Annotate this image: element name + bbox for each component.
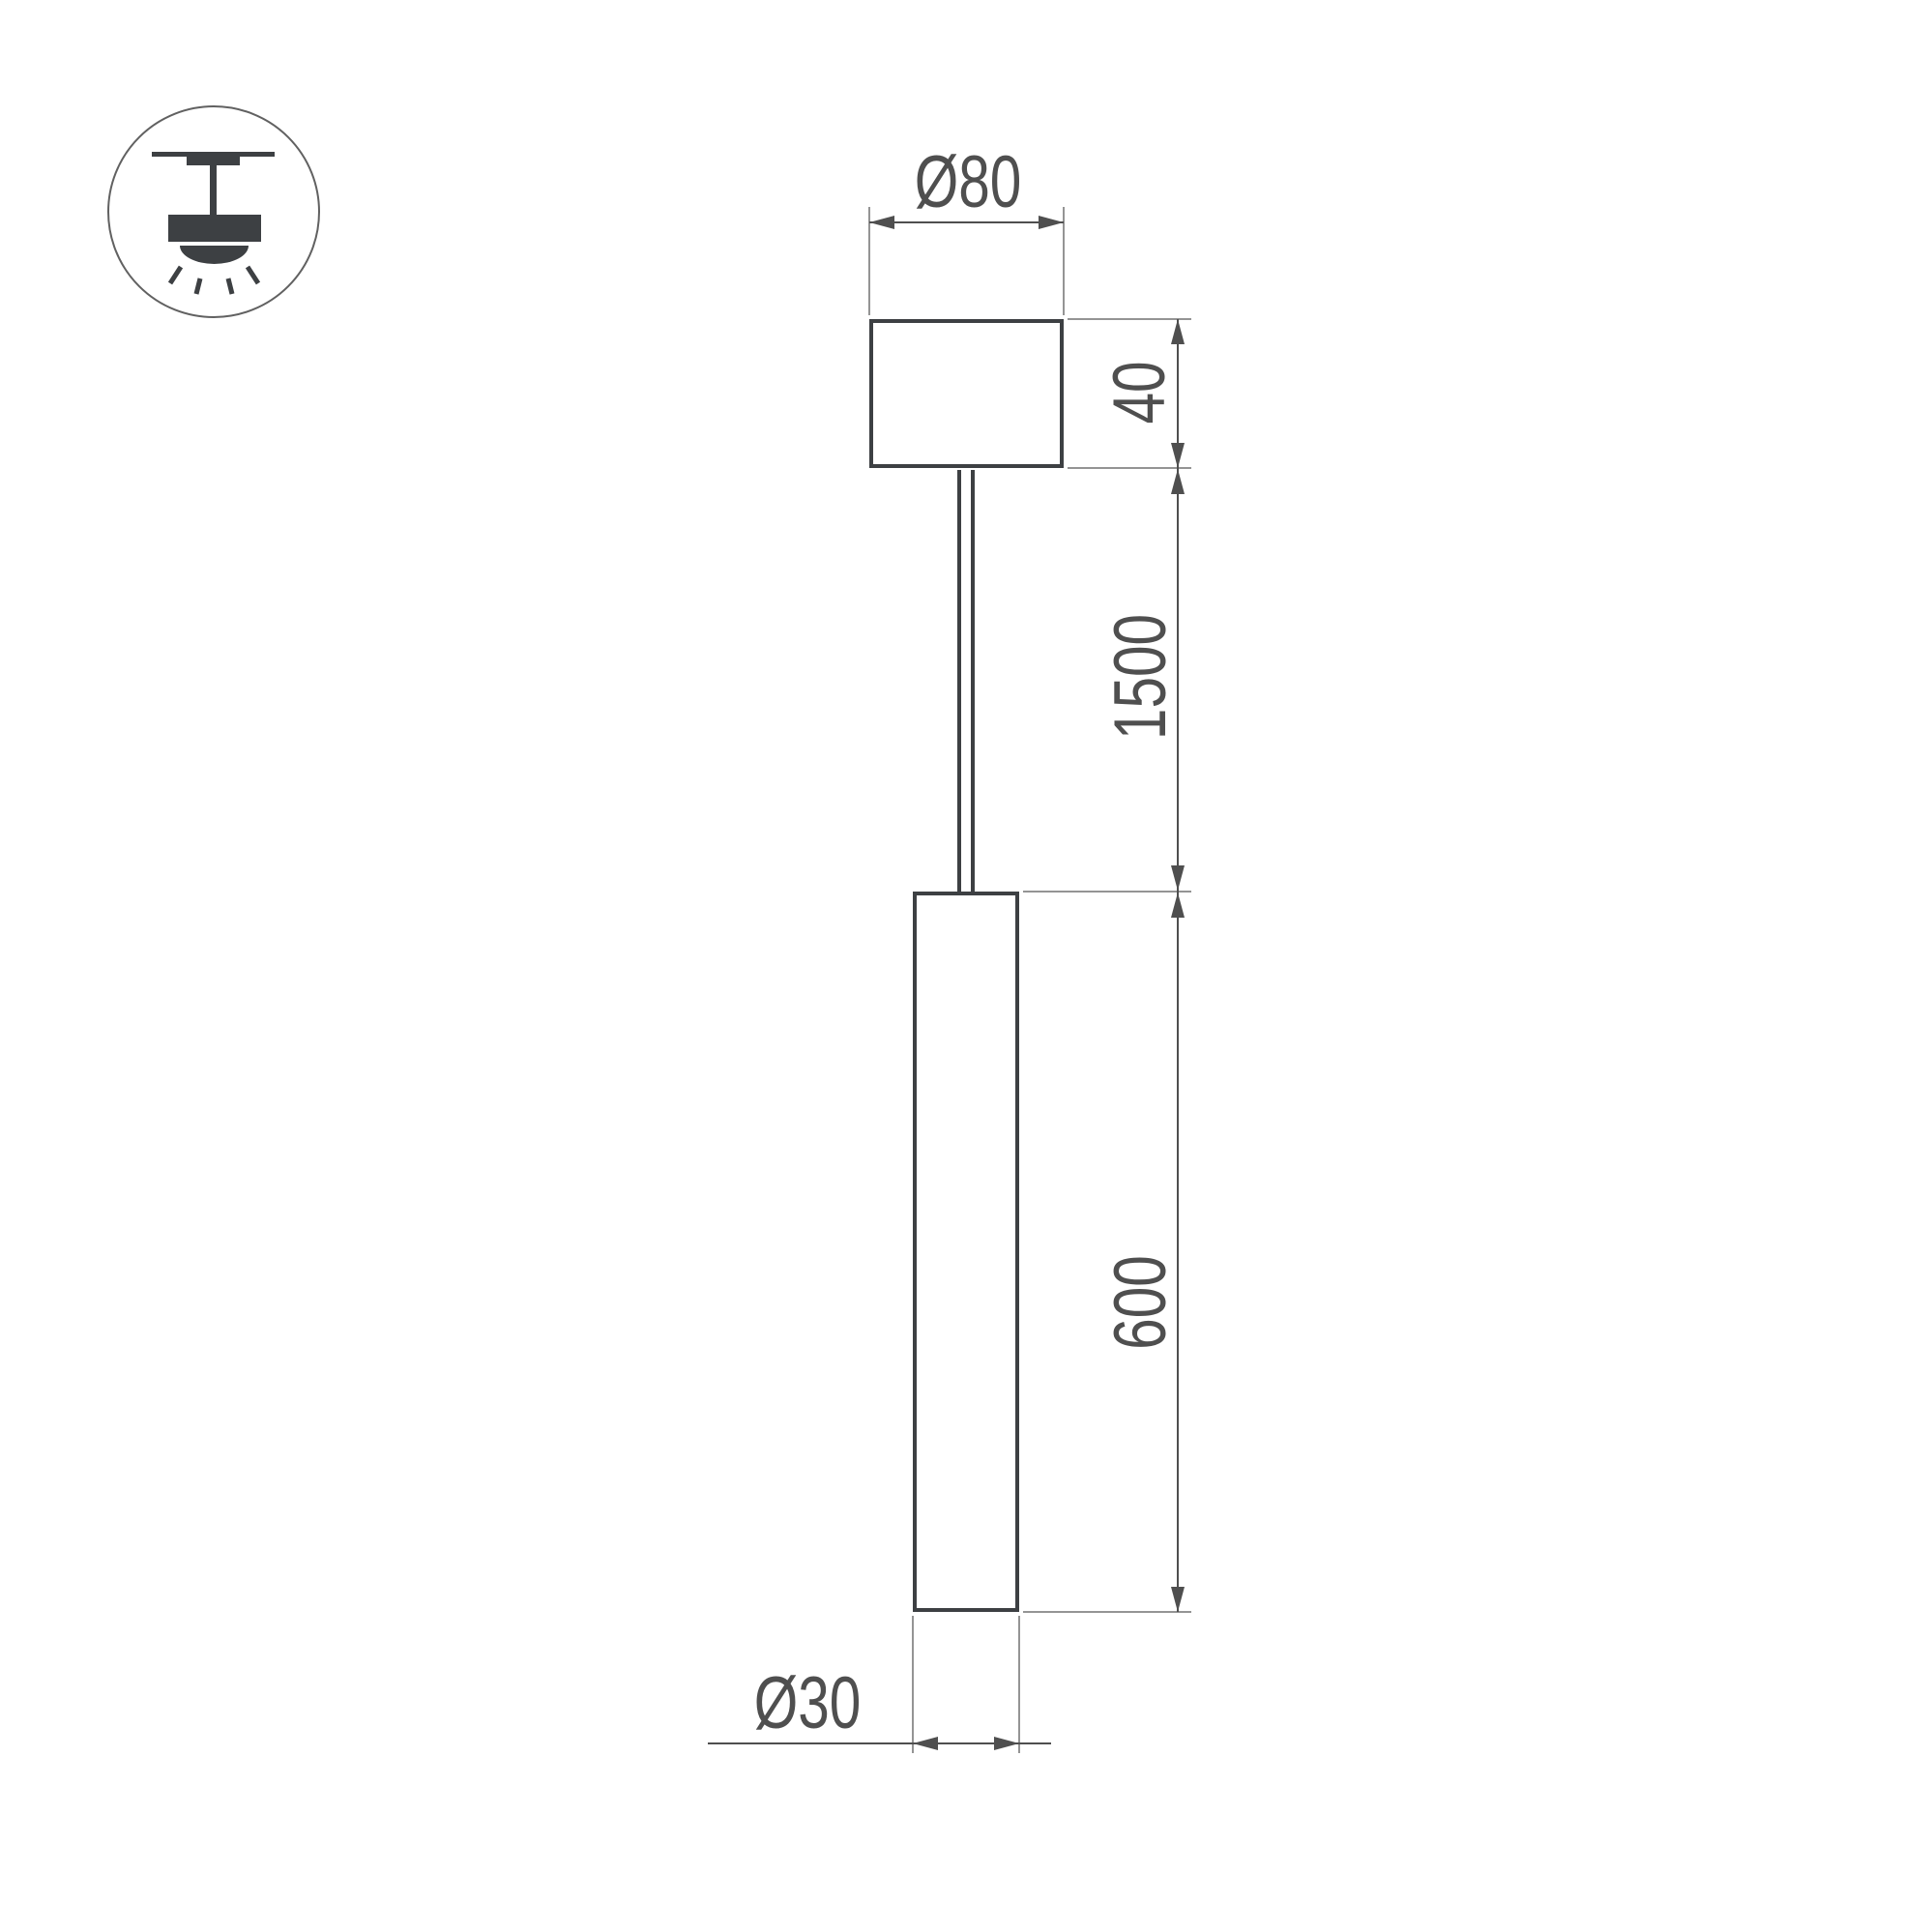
dim-canopy-height: 40 bbox=[1068, 319, 1191, 468]
dim-suspension-length: 1500 bbox=[1023, 468, 1191, 892]
technical-drawing: Ø80 40 1500 bbox=[0, 0, 1932, 1932]
tube-length-label: 600 bbox=[1100, 1255, 1182, 1350]
arrow-up-icon bbox=[1171, 469, 1185, 494]
canopy-height-label: 40 bbox=[1099, 361, 1181, 424]
canopy-diameter-label: Ø80 bbox=[915, 142, 1022, 223]
dim-tube-length: 600 bbox=[1023, 892, 1191, 1612]
suspension-wire bbox=[959, 470, 973, 892]
drawing-canvas: Ø80 40 1500 bbox=[0, 0, 1932, 1932]
icon-light-dome bbox=[180, 246, 249, 264]
arrow-down-icon bbox=[1171, 865, 1185, 891]
icon-light-rays bbox=[170, 267, 258, 294]
luminaire-outline bbox=[871, 321, 1062, 1610]
arrow-left-icon bbox=[913, 1737, 938, 1750]
arrow-down-icon bbox=[1171, 1587, 1185, 1612]
arrow-right-icon bbox=[1039, 216, 1064, 229]
pendant-light-icon bbox=[108, 106, 319, 317]
arrow-up-icon bbox=[1171, 893, 1185, 918]
lamp-tube-outline bbox=[915, 893, 1017, 1610]
arrow-up-icon bbox=[1171, 319, 1185, 344]
canopy-outline bbox=[871, 321, 1062, 466]
dim-canopy-diameter: Ø80 bbox=[869, 142, 1064, 315]
icon-suspension-stem bbox=[210, 165, 217, 217]
tube-diameter-label: Ø30 bbox=[754, 1663, 862, 1744]
icon-ceiling-line bbox=[152, 152, 275, 157]
suspension-length-label: 1500 bbox=[1100, 614, 1182, 740]
arrow-down-icon bbox=[1171, 443, 1185, 468]
icon-canopy-bar bbox=[187, 157, 240, 165]
arrow-left-icon bbox=[869, 216, 894, 229]
arrow-right-icon bbox=[994, 1737, 1019, 1750]
dim-tube-diameter: Ø30 bbox=[708, 1616, 1051, 1753]
icon-lamp-body bbox=[168, 215, 261, 242]
